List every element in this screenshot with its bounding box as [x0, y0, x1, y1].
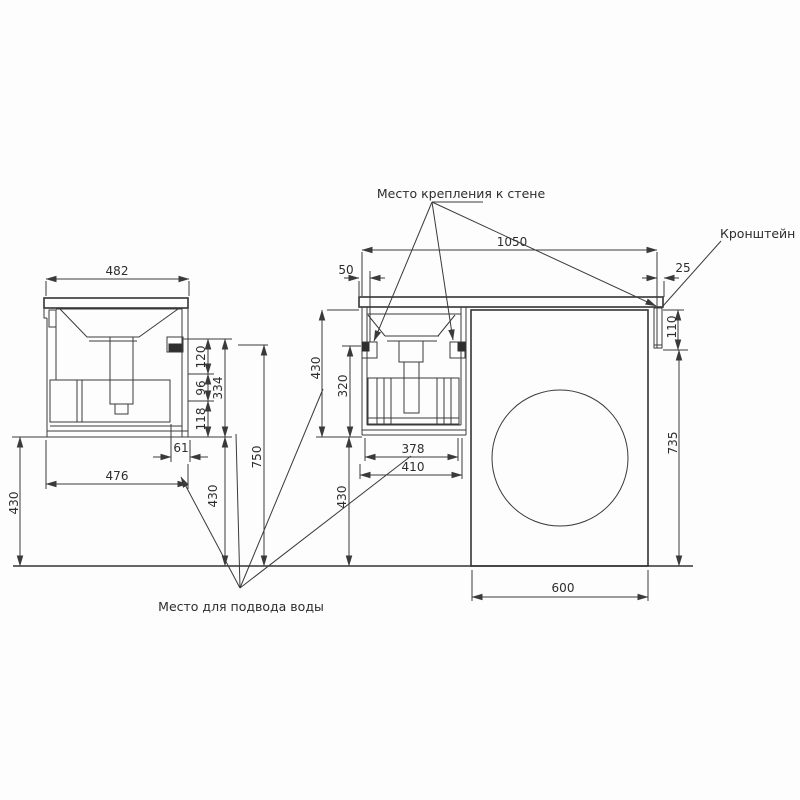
dim-410: 410 [402, 460, 425, 474]
leader-wall-mount-left [374, 202, 432, 341]
label-wall-mount: Место крепления к стене [377, 186, 546, 201]
dim-50: 50 [338, 263, 353, 277]
front-view-assembly [359, 297, 663, 566]
side-panel-notch [49, 310, 56, 327]
dim-750: 750 [250, 446, 264, 469]
side-view-cabinet [44, 298, 188, 437]
washing-machine [471, 310, 648, 566]
wall-bracket-side-pad [169, 344, 181, 351]
sink-basin-side [56, 309, 182, 341]
leader-water-right [240, 456, 411, 588]
leader-water-mid [240, 389, 323, 588]
dim-430-center: 430 [206, 485, 220, 508]
dim-61: 61 [173, 441, 188, 455]
drain-trap-front [399, 341, 423, 362]
leader-water-center [236, 434, 240, 588]
dim-378: 378 [402, 442, 425, 456]
dim-735: 735 [666, 432, 680, 455]
drain-pipe-outlet-side [115, 404, 128, 414]
dim-110: 110 [665, 316, 679, 339]
dim-320: 320 [336, 375, 350, 398]
drain-pipe-side [110, 337, 133, 404]
dim-96: 96 [194, 380, 208, 395]
countertop-front [359, 297, 663, 307]
dim-334: 334 [211, 377, 225, 400]
dim-1050: 1050 [497, 235, 528, 249]
end-bracket [654, 308, 662, 348]
leader-bracket [663, 241, 721, 306]
label-water-supply: Место для подвода воды [158, 599, 324, 614]
dim-25: 25 [675, 261, 690, 275]
drawer-front [368, 378, 459, 424]
countertop-side [44, 298, 188, 308]
dimensions-front-view: 1050 50 25 430 320 430 378 410 600 [309, 235, 691, 601]
leader-wall-mount-end [432, 202, 656, 306]
label-bracket: Кронштейн [720, 226, 795, 241]
countertop-edge-step [44, 308, 47, 318]
drain-pipe-front [404, 362, 419, 413]
sink-basin-front [367, 314, 461, 341]
dim-482: 482 [106, 264, 129, 278]
dim-430-left: 430 [7, 492, 21, 515]
dim-600: 600 [552, 581, 575, 595]
washing-machine-door [492, 390, 628, 526]
technical-drawing-page: 482 120 96 118 334 750 430 430 61 476 [0, 0, 800, 800]
dim-120: 120 [194, 346, 208, 369]
leader-wall-mount-right [432, 202, 453, 340]
dim-476: 476 [106, 469, 129, 483]
dim-430-upper: 430 [309, 357, 323, 380]
dim-118: 118 [194, 408, 208, 431]
vanity-washing-machine-drawing: 482 120 96 118 334 750 430 430 61 476 [0, 0, 800, 800]
